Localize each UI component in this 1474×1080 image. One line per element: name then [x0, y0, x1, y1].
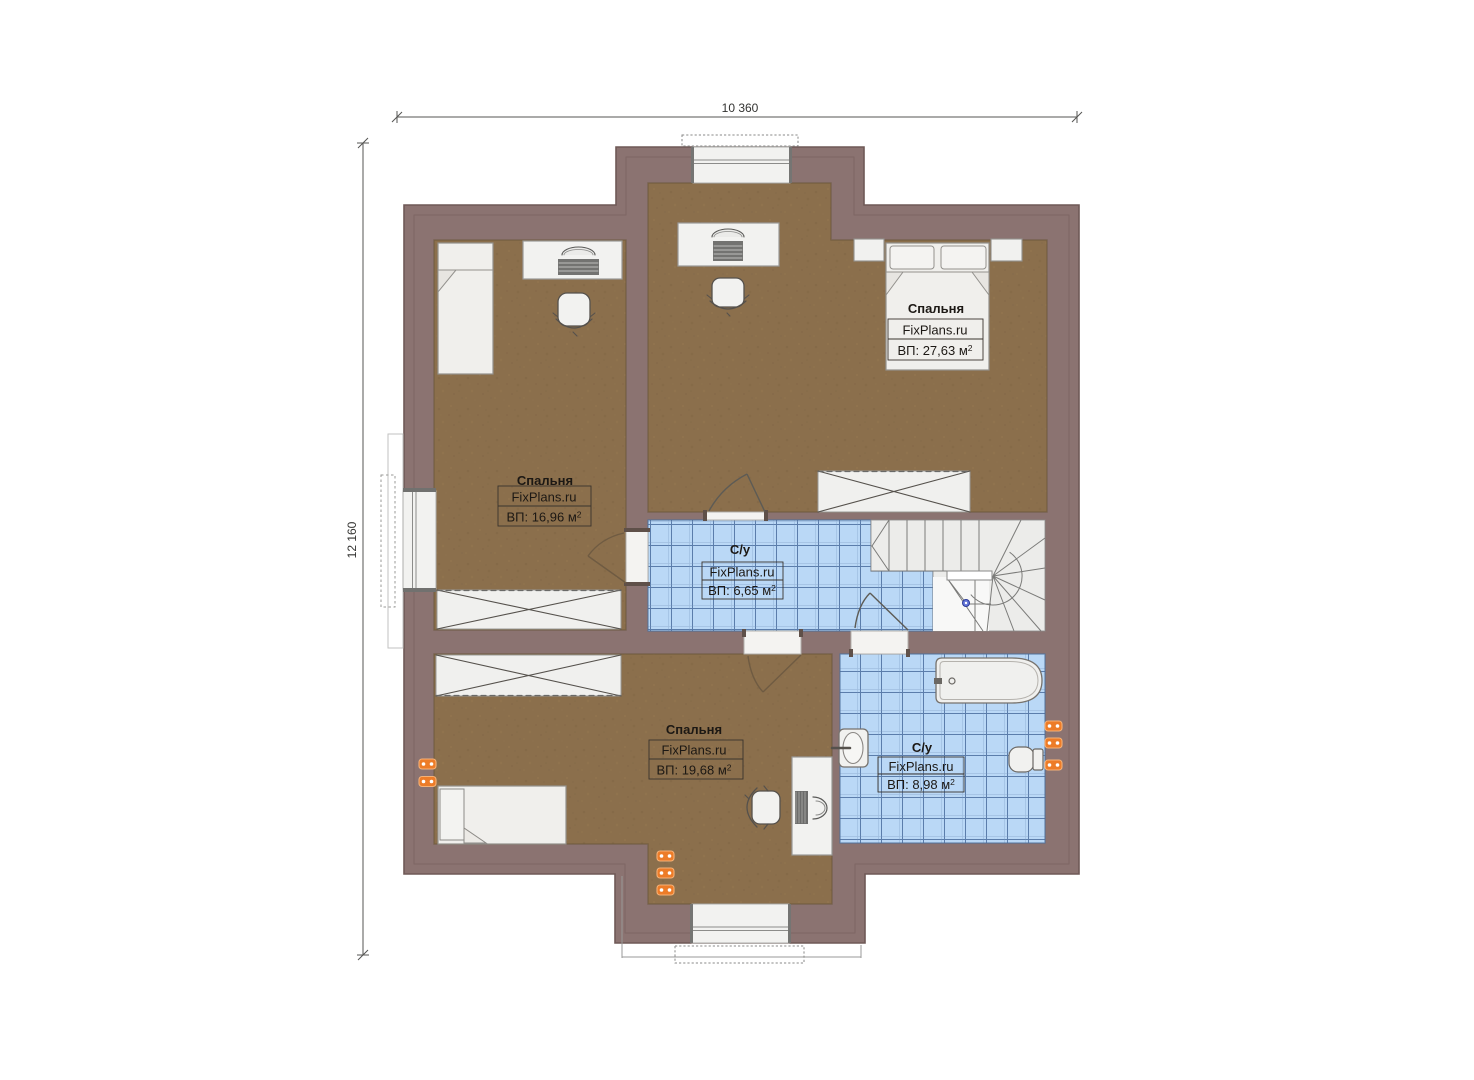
svg-text:FixPlans.ru: FixPlans.ru — [902, 323, 967, 338]
svg-text:ВП: 8,98 м2: ВП: 8,98 м2 — [887, 777, 955, 792]
svg-text:С/у: С/у — [730, 542, 751, 557]
svg-text:10 360: 10 360 — [722, 101, 759, 115]
svg-text:ВП: 6,65 м2: ВП: 6,65 м2 — [708, 583, 776, 598]
svg-text:ВП: 19,68 м2: ВП: 19,68 м2 — [656, 763, 731, 778]
svg-text:12 160: 12 160 — [345, 521, 359, 558]
svg-text:Спальня: Спальня — [666, 722, 722, 737]
svg-text:Спальня: Спальня — [908, 301, 964, 316]
svg-text:FixPlans.ru: FixPlans.ru — [661, 743, 726, 758]
svg-text:ВП: 16,96 м2: ВП: 16,96 м2 — [506, 510, 581, 525]
svg-text:С/у: С/у — [912, 740, 933, 755]
svg-text:ВП: 27,63 м2: ВП: 27,63 м2 — [897, 343, 972, 358]
svg-text:FixPlans.ru: FixPlans.ru — [709, 565, 774, 580]
svg-text:FixPlans.ru: FixPlans.ru — [888, 759, 953, 774]
svg-text:FixPlans.ru: FixPlans.ru — [511, 490, 576, 505]
